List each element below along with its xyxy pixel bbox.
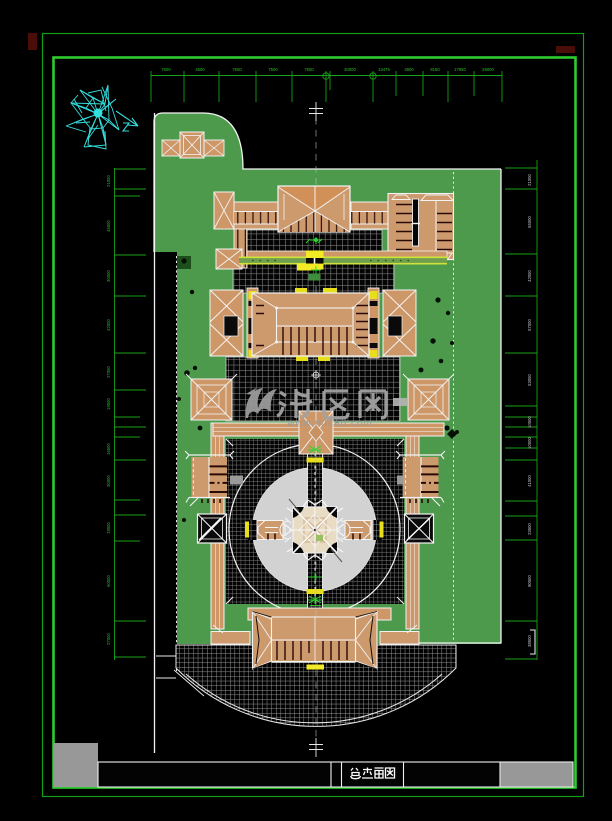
svg-text:17850: 17850 xyxy=(454,67,466,72)
svg-text:30000: 30000 xyxy=(106,475,111,487)
svg-text:60000: 60000 xyxy=(106,575,111,587)
svg-text:65000: 65000 xyxy=(527,216,532,228)
svg-text:53000: 53000 xyxy=(527,374,532,386)
svg-text:28000: 28000 xyxy=(482,67,494,72)
svg-text:8150: 8150 xyxy=(430,67,440,72)
svg-text:38500: 38500 xyxy=(527,635,532,647)
svg-text:7500: 7500 xyxy=(304,67,314,72)
svg-text:7500: 7500 xyxy=(268,67,278,72)
svg-text:27000: 27000 xyxy=(106,633,111,645)
svg-text:19500: 19500 xyxy=(106,522,111,534)
svg-text:4900: 4900 xyxy=(404,67,414,72)
svg-text:57000: 57000 xyxy=(527,319,532,331)
svg-text:21000: 21000 xyxy=(106,175,111,187)
svg-text:42000: 42000 xyxy=(527,270,532,282)
svg-text:41000: 41000 xyxy=(527,475,532,487)
svg-text:www.mfcad.com: www.mfcad.com xyxy=(286,418,373,429)
svg-text:30000: 30000 xyxy=(106,270,111,282)
svg-text:30000: 30000 xyxy=(344,67,356,72)
svg-text:13475: 13475 xyxy=(378,67,390,72)
svg-text:10500: 10500 xyxy=(527,416,532,428)
svg-text:10500: 10500 xyxy=(527,437,532,449)
svg-text:7500: 7500 xyxy=(232,67,242,72)
svg-text:42000: 42000 xyxy=(106,319,111,331)
svg-text:16500: 16500 xyxy=(106,443,111,455)
svg-text:4500: 4500 xyxy=(195,67,205,72)
svg-text:7500: 7500 xyxy=(161,67,171,72)
svg-text:23500: 23500 xyxy=(527,523,532,535)
svg-text:19500: 19500 xyxy=(106,398,111,410)
svg-text:80500: 80500 xyxy=(527,575,532,587)
svg-text:45000: 45000 xyxy=(106,220,111,232)
svg-text:27000: 27000 xyxy=(106,366,111,378)
svg-text:21000: 21000 xyxy=(527,174,532,186)
